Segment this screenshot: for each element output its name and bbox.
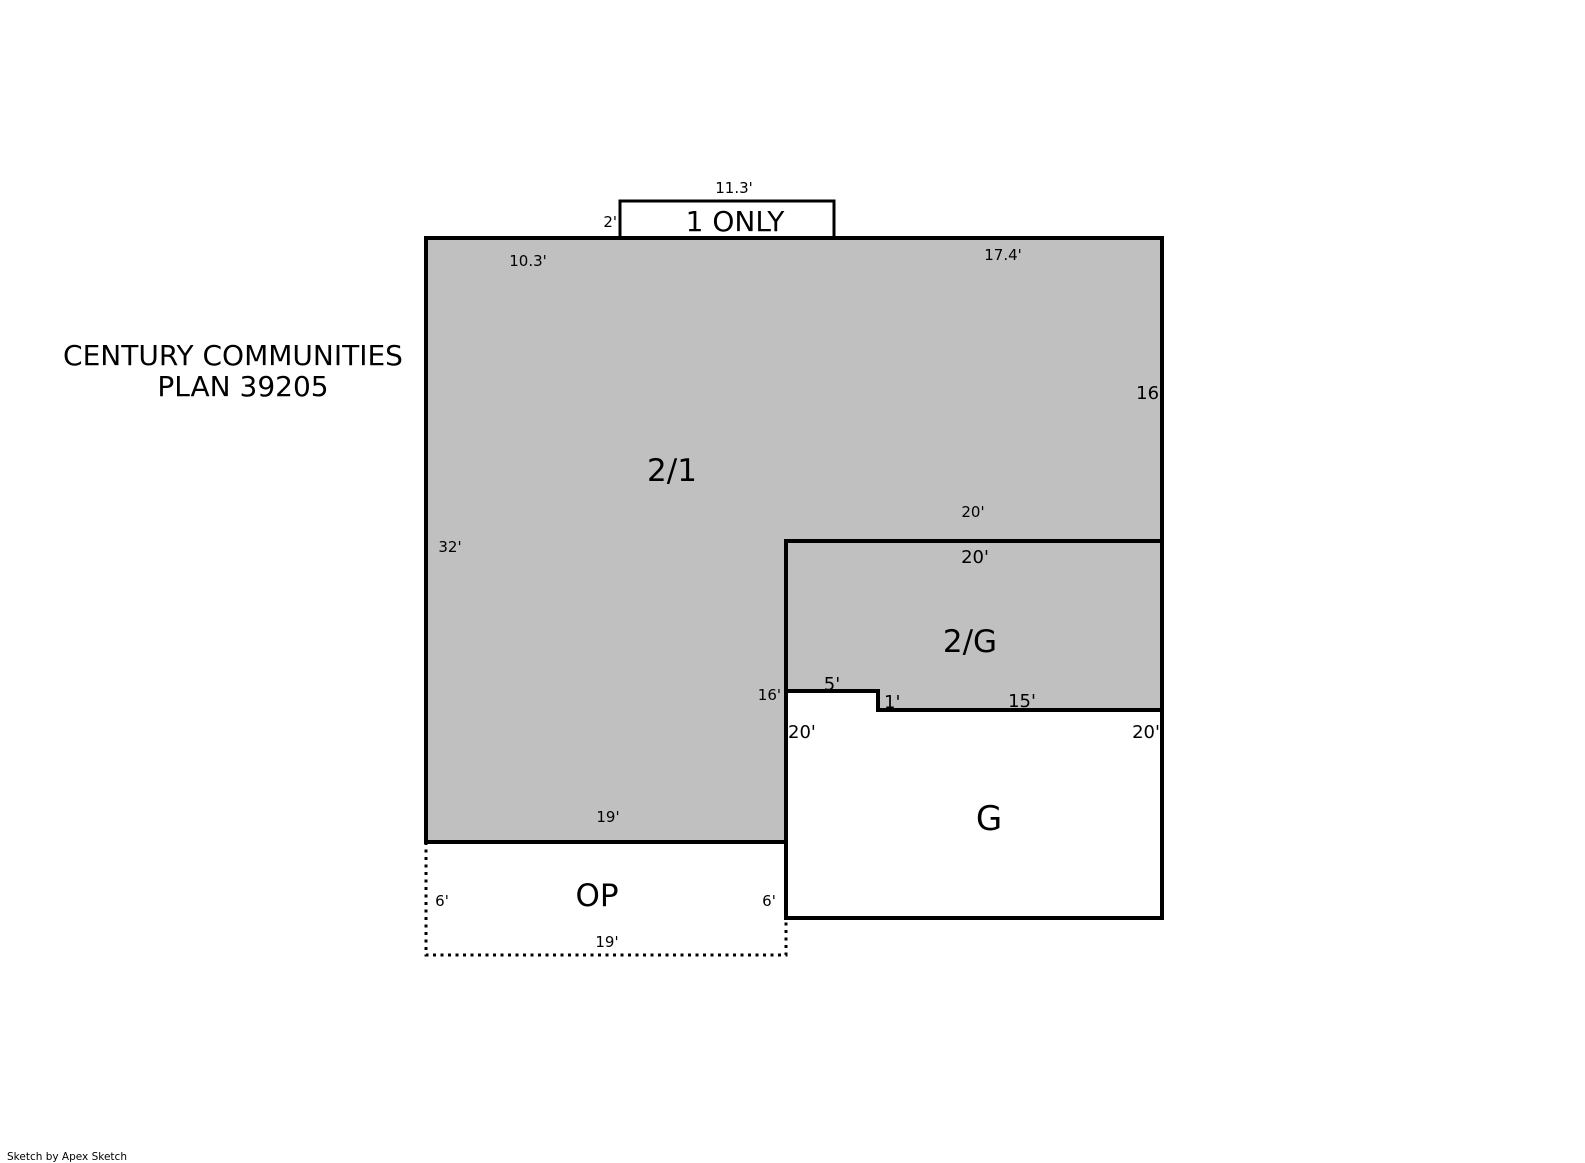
area-label-2-g: 2/G — [943, 624, 997, 660]
dim-op-right: 6' — [762, 892, 776, 910]
dim-op-bottom: 19' — [595, 933, 618, 951]
dim-op-left: 6' — [435, 892, 449, 910]
dim-split-above: 20' — [961, 503, 984, 521]
dim-main-top-left: 10.3' — [509, 252, 547, 270]
area-label-1-only: 1 ONLY — [686, 205, 786, 238]
area-g-shape — [786, 691, 1162, 918]
area-label-op: OP — [575, 878, 618, 914]
dim-step-left: 16' — [758, 686, 781, 704]
dim-main-right: 16' — [1136, 383, 1164, 404]
plan-title-line1: CENTURY COMMUNITIES — [63, 339, 403, 372]
area-label-g: G — [976, 799, 1002, 839]
dim-one-only-left: 2' — [603, 213, 617, 231]
dim-g-left: 20' — [788, 722, 816, 743]
dim-main-bottom: 19' — [596, 808, 619, 826]
dim-main-top-right: 17.4' — [984, 246, 1022, 264]
dim-two-g-bottom: 15' — [1008, 691, 1036, 712]
dim-step-side: 1' — [884, 692, 900, 713]
area-label-2-1: 2/1 — [647, 453, 697, 489]
dim-one-only-top: 11.3' — [715, 179, 753, 197]
plan-title-line2: PLAN 39205 — [157, 370, 328, 403]
sketch-credit: Sketch by Apex Sketch — [7, 1151, 127, 1163]
dim-split-below: 20' — [961, 547, 989, 568]
dim-g-right: 20' — [1132, 722, 1160, 743]
floor-plan-sketch: CENTURY COMMUNITIES PLAN 39205 1 ONLY 2/… — [0, 0, 1585, 1163]
dim-main-left: 32' — [438, 538, 461, 556]
dim-step-top: 5' — [824, 674, 840, 695]
